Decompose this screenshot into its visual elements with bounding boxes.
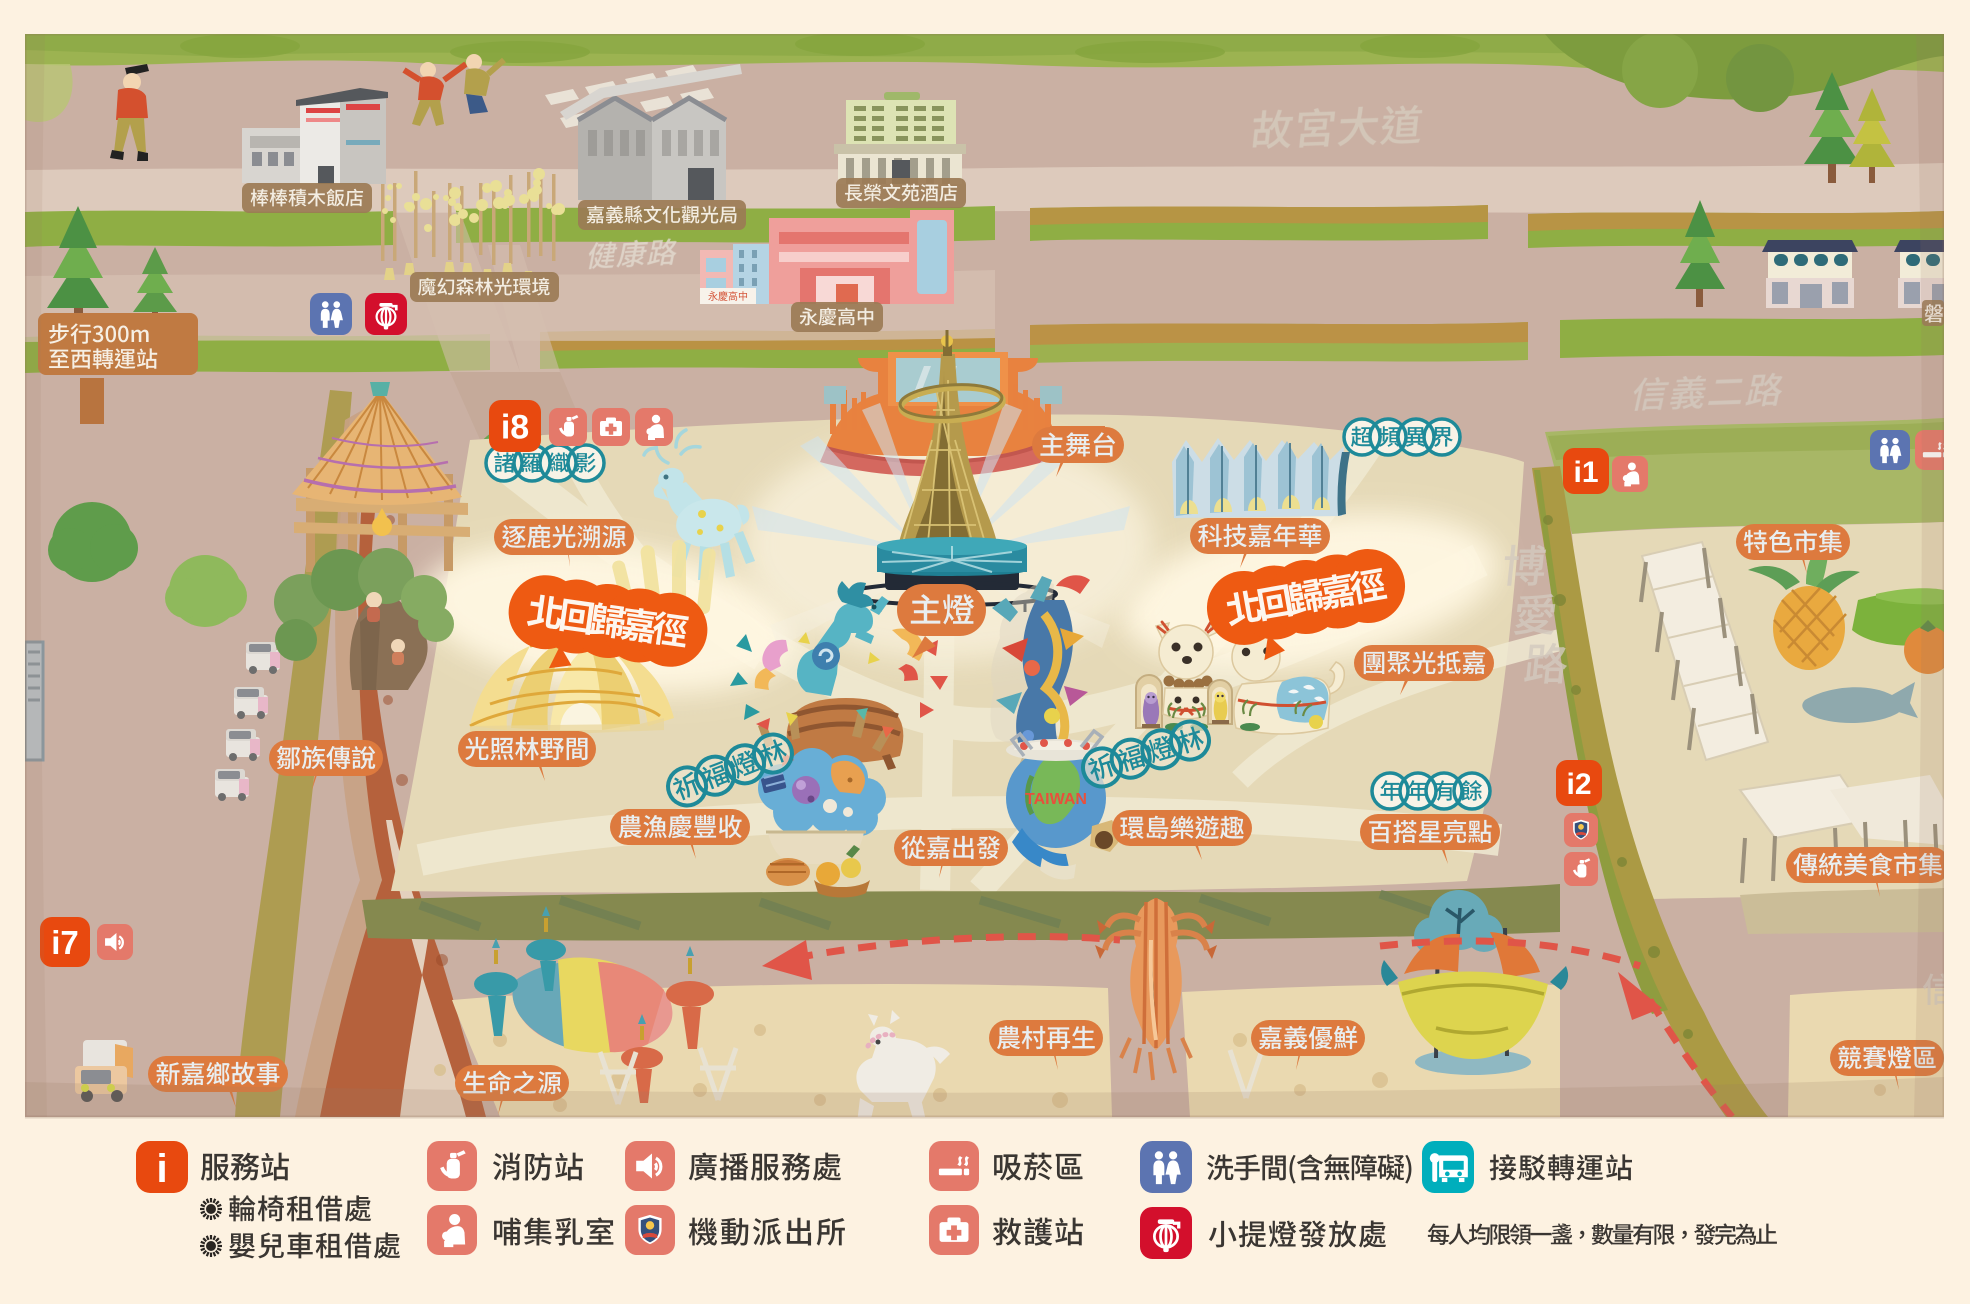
svg-text:i2: i2 — [1566, 768, 1591, 801]
svg-text:永慶高中: 永慶高中 — [708, 290, 748, 303]
svg-text:i7: i7 — [51, 924, 79, 961]
svg-text:i: i — [156, 1147, 167, 1191]
svg-text:TAIWAN: TAIWAN — [1025, 791, 1087, 808]
svg-text:i8: i8 — [501, 408, 529, 446]
svg-text:i1: i1 — [1573, 456, 1598, 489]
